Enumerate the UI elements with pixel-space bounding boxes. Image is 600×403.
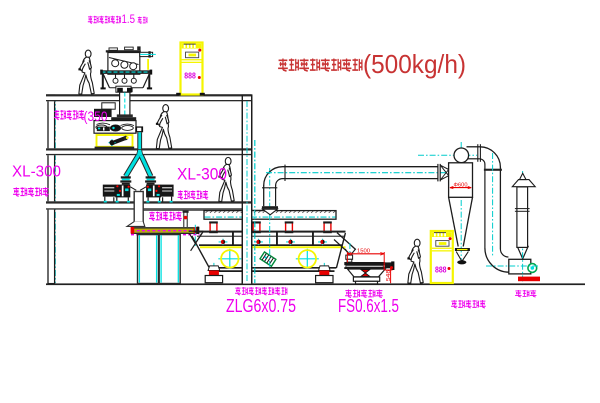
svg-text:FS0.6x1.5: FS0.6x1.5: [338, 295, 399, 316]
svg-text:Φ600: Φ600: [454, 183, 468, 189]
svg-text:(500kg/h): (500kg/h): [363, 49, 466, 79]
svg-text:888: 888: [184, 71, 196, 81]
svg-text:ZLG6x0.75: ZLG6x0.75: [226, 295, 296, 316]
svg-text:XL-300: XL-300: [177, 165, 227, 184]
svg-text:548: 548: [386, 270, 392, 281]
svg-text:1500: 1500: [357, 249, 370, 255]
svg-text:XL-300: XL-300: [12, 164, 61, 181]
svg-text:(350: (350: [84, 109, 108, 124]
svg-text:888: 888: [435, 265, 447, 275]
svg-text:1.5: 1.5: [122, 14, 136, 26]
